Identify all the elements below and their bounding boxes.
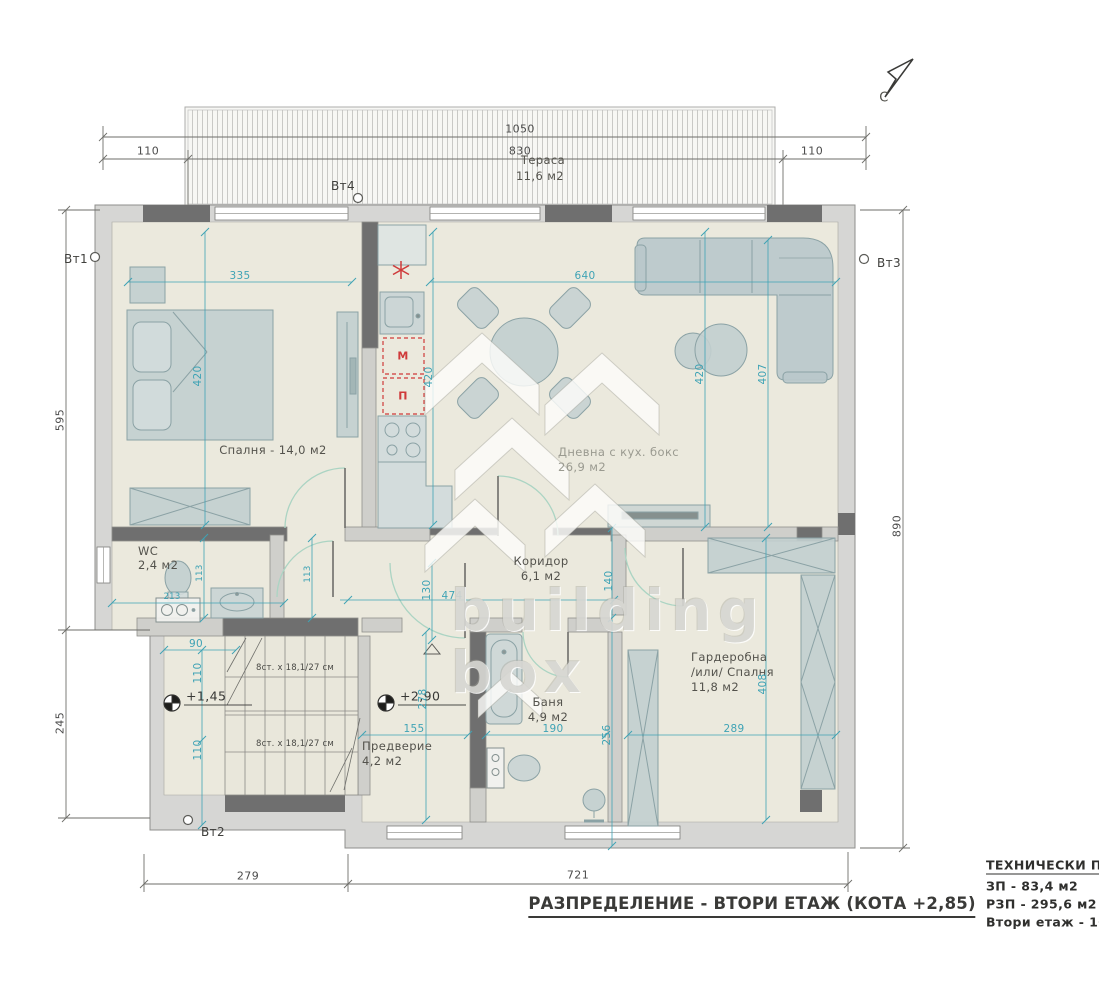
bath-toilet: [508, 755, 540, 781]
dim-110-left: 110: [137, 145, 159, 158]
marker-vt2: [184, 816, 193, 825]
living-name: Дневна с кух. бокс: [558, 445, 679, 459]
dim-155: 155: [404, 723, 425, 735]
dim-721: 721: [567, 869, 589, 882]
wardrobe-name: Гардеробна: [691, 650, 767, 664]
dim-1050: 1050: [505, 123, 535, 136]
dim-279: 279: [237, 870, 259, 883]
dim-335: 335: [230, 270, 251, 282]
wardrobe-right: [801, 575, 835, 789]
dim-110-right: 110: [801, 145, 823, 158]
terrace-deck: [185, 107, 775, 207]
dim-190: 190: [543, 723, 564, 735]
marker-label-vt3: Вт3: [877, 256, 901, 270]
dim-113-a: 113: [195, 564, 205, 581]
dim-110-a: 110: [192, 663, 204, 684]
terrace-name: Тераса: [521, 153, 565, 167]
tech-heading: ТЕХНИЧЕСКИ ПОК: [986, 858, 1099, 875]
dim-256: 256: [601, 725, 613, 746]
wardrobe-area: 11,8 м2: [691, 680, 739, 694]
drawing-title: РАЗПРЕДЕЛЕНИЕ - ВТОРИ ЕТАЖ (КОТА +2,85): [528, 894, 975, 918]
wc-name: WC: [138, 544, 158, 558]
marker-label-vt1: Вт1: [64, 252, 88, 266]
dim-420-kitchen: 420: [423, 367, 435, 388]
dim-640: 640: [575, 270, 596, 282]
watermark-line2: box: [450, 638, 587, 706]
dim-113-b: 113: [303, 565, 313, 582]
dim-130: 130: [421, 580, 433, 601]
kitchen-m-label: М: [397, 350, 408, 363]
tech-zp: ЗП - 83,4 м2: [986, 879, 1078, 894]
wc-area: 2,4 м2: [138, 558, 178, 572]
wardrobe-left: [628, 650, 658, 826]
entry-name: Предверие: [362, 739, 432, 753]
staircase: [225, 636, 360, 795]
stairs-lower-label: 8ст. x 18,1/27 см: [256, 739, 334, 749]
wardrobe-top: [708, 538, 835, 573]
marker-vt3: [860, 255, 869, 264]
stove: [378, 416, 426, 462]
floor-plan-drawing: [0, 0, 1099, 1000]
floor-plan-page: 1050 830 110 110 Тераса 11,6 м2 Вт4 Вт1 …: [0, 0, 1099, 1000]
terrace-area: 11,6 м2: [516, 169, 564, 183]
dim-890: 890: [891, 515, 904, 537]
dim-420-living: 420: [694, 364, 706, 385]
dim-408: 408: [757, 674, 769, 695]
corridor-name: Коридор: [513, 554, 568, 568]
tv: [622, 512, 698, 519]
tech-floor: Втори етаж - 106: [986, 915, 1099, 930]
dim-90: 90: [189, 638, 203, 650]
dim-420-bedroom: 420: [192, 366, 204, 387]
marker-label-vt2: Вт2: [201, 825, 225, 839]
north-label: С: [879, 91, 888, 106]
nightstand: [130, 267, 165, 303]
tech-rzp: РЗП - 295,6 м2: [986, 897, 1097, 912]
north-arrow-icon: [885, 59, 913, 97]
marker-vt1: [91, 253, 100, 262]
watermark-line1: building: [450, 576, 765, 644]
bedroom-label: Спалня - 14,0 м2: [219, 443, 327, 457]
dim-595: 595: [54, 409, 67, 431]
kitchen-p-label: П: [398, 390, 408, 403]
dim-110-b: 110: [192, 740, 204, 761]
entry-area: 4,2 м2: [362, 754, 402, 768]
dim-289: 289: [724, 723, 745, 735]
marker-label-vt4: Вт4: [331, 179, 355, 193]
marker-vt4: [354, 194, 363, 203]
bath-area: 4,9 м2: [528, 710, 568, 724]
elevation-145: +1,45: [184, 689, 252, 706]
dim-407: 407: [757, 364, 769, 385]
wardrobe-bedroom: [130, 488, 250, 525]
dim-278: 278: [417, 689, 429, 710]
living-area: 26,9 м2: [558, 460, 606, 474]
dim-245: 245: [54, 712, 67, 734]
dim-213: 213: [163, 592, 180, 602]
stairs-upper-label: 8ст. x 18,1/27 см: [256, 663, 334, 673]
